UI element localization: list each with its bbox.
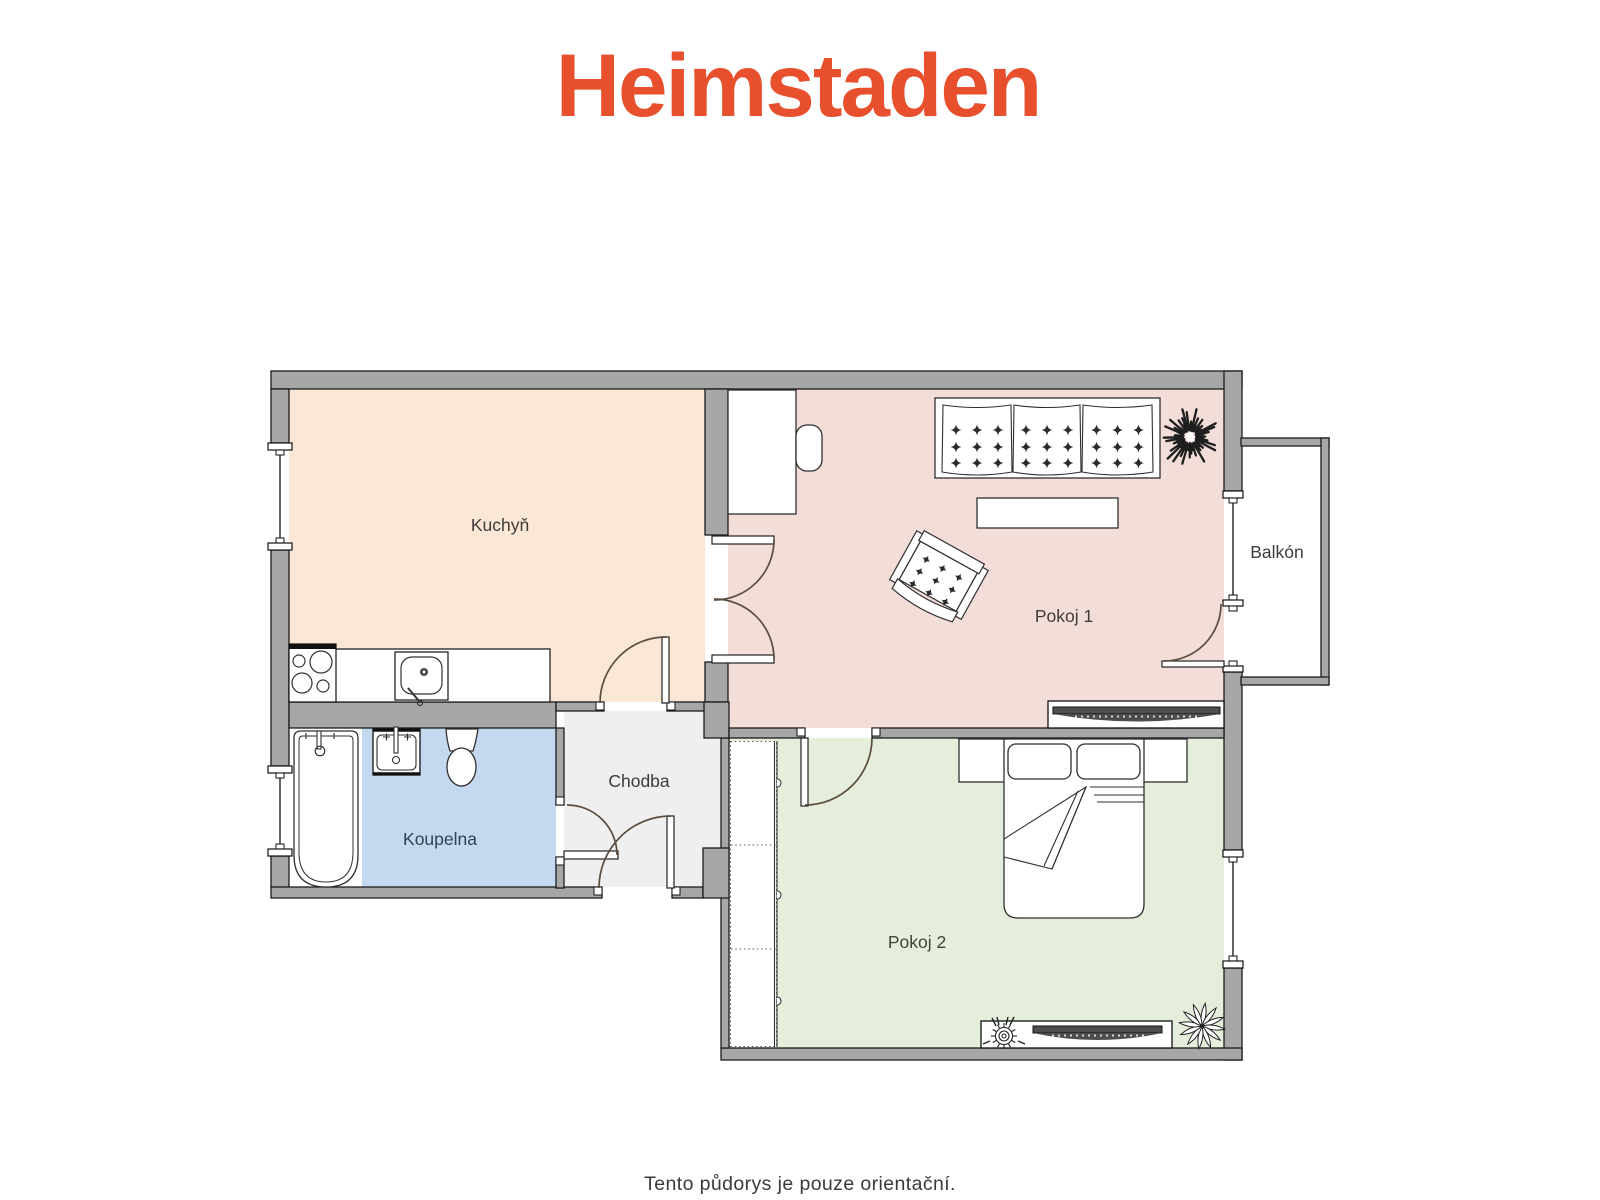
svg-text:Kuchyň: Kuchyň [471, 515, 529, 535]
svg-text:Balkón: Balkón [1250, 542, 1304, 562]
svg-text:Chodba: Chodba [608, 771, 670, 791]
svg-text:Heimstaden: Heimstaden [556, 35, 1041, 135]
svg-text:Pokoj 1: Pokoj 1 [1035, 606, 1093, 626]
svg-text:Koupelna: Koupelna [403, 829, 477, 849]
svg-text:Pokoj 2: Pokoj 2 [888, 932, 946, 952]
svg-text:Tento půdorys je pouze orienta: Tento půdorys je pouze orientační. [644, 1173, 956, 1195]
